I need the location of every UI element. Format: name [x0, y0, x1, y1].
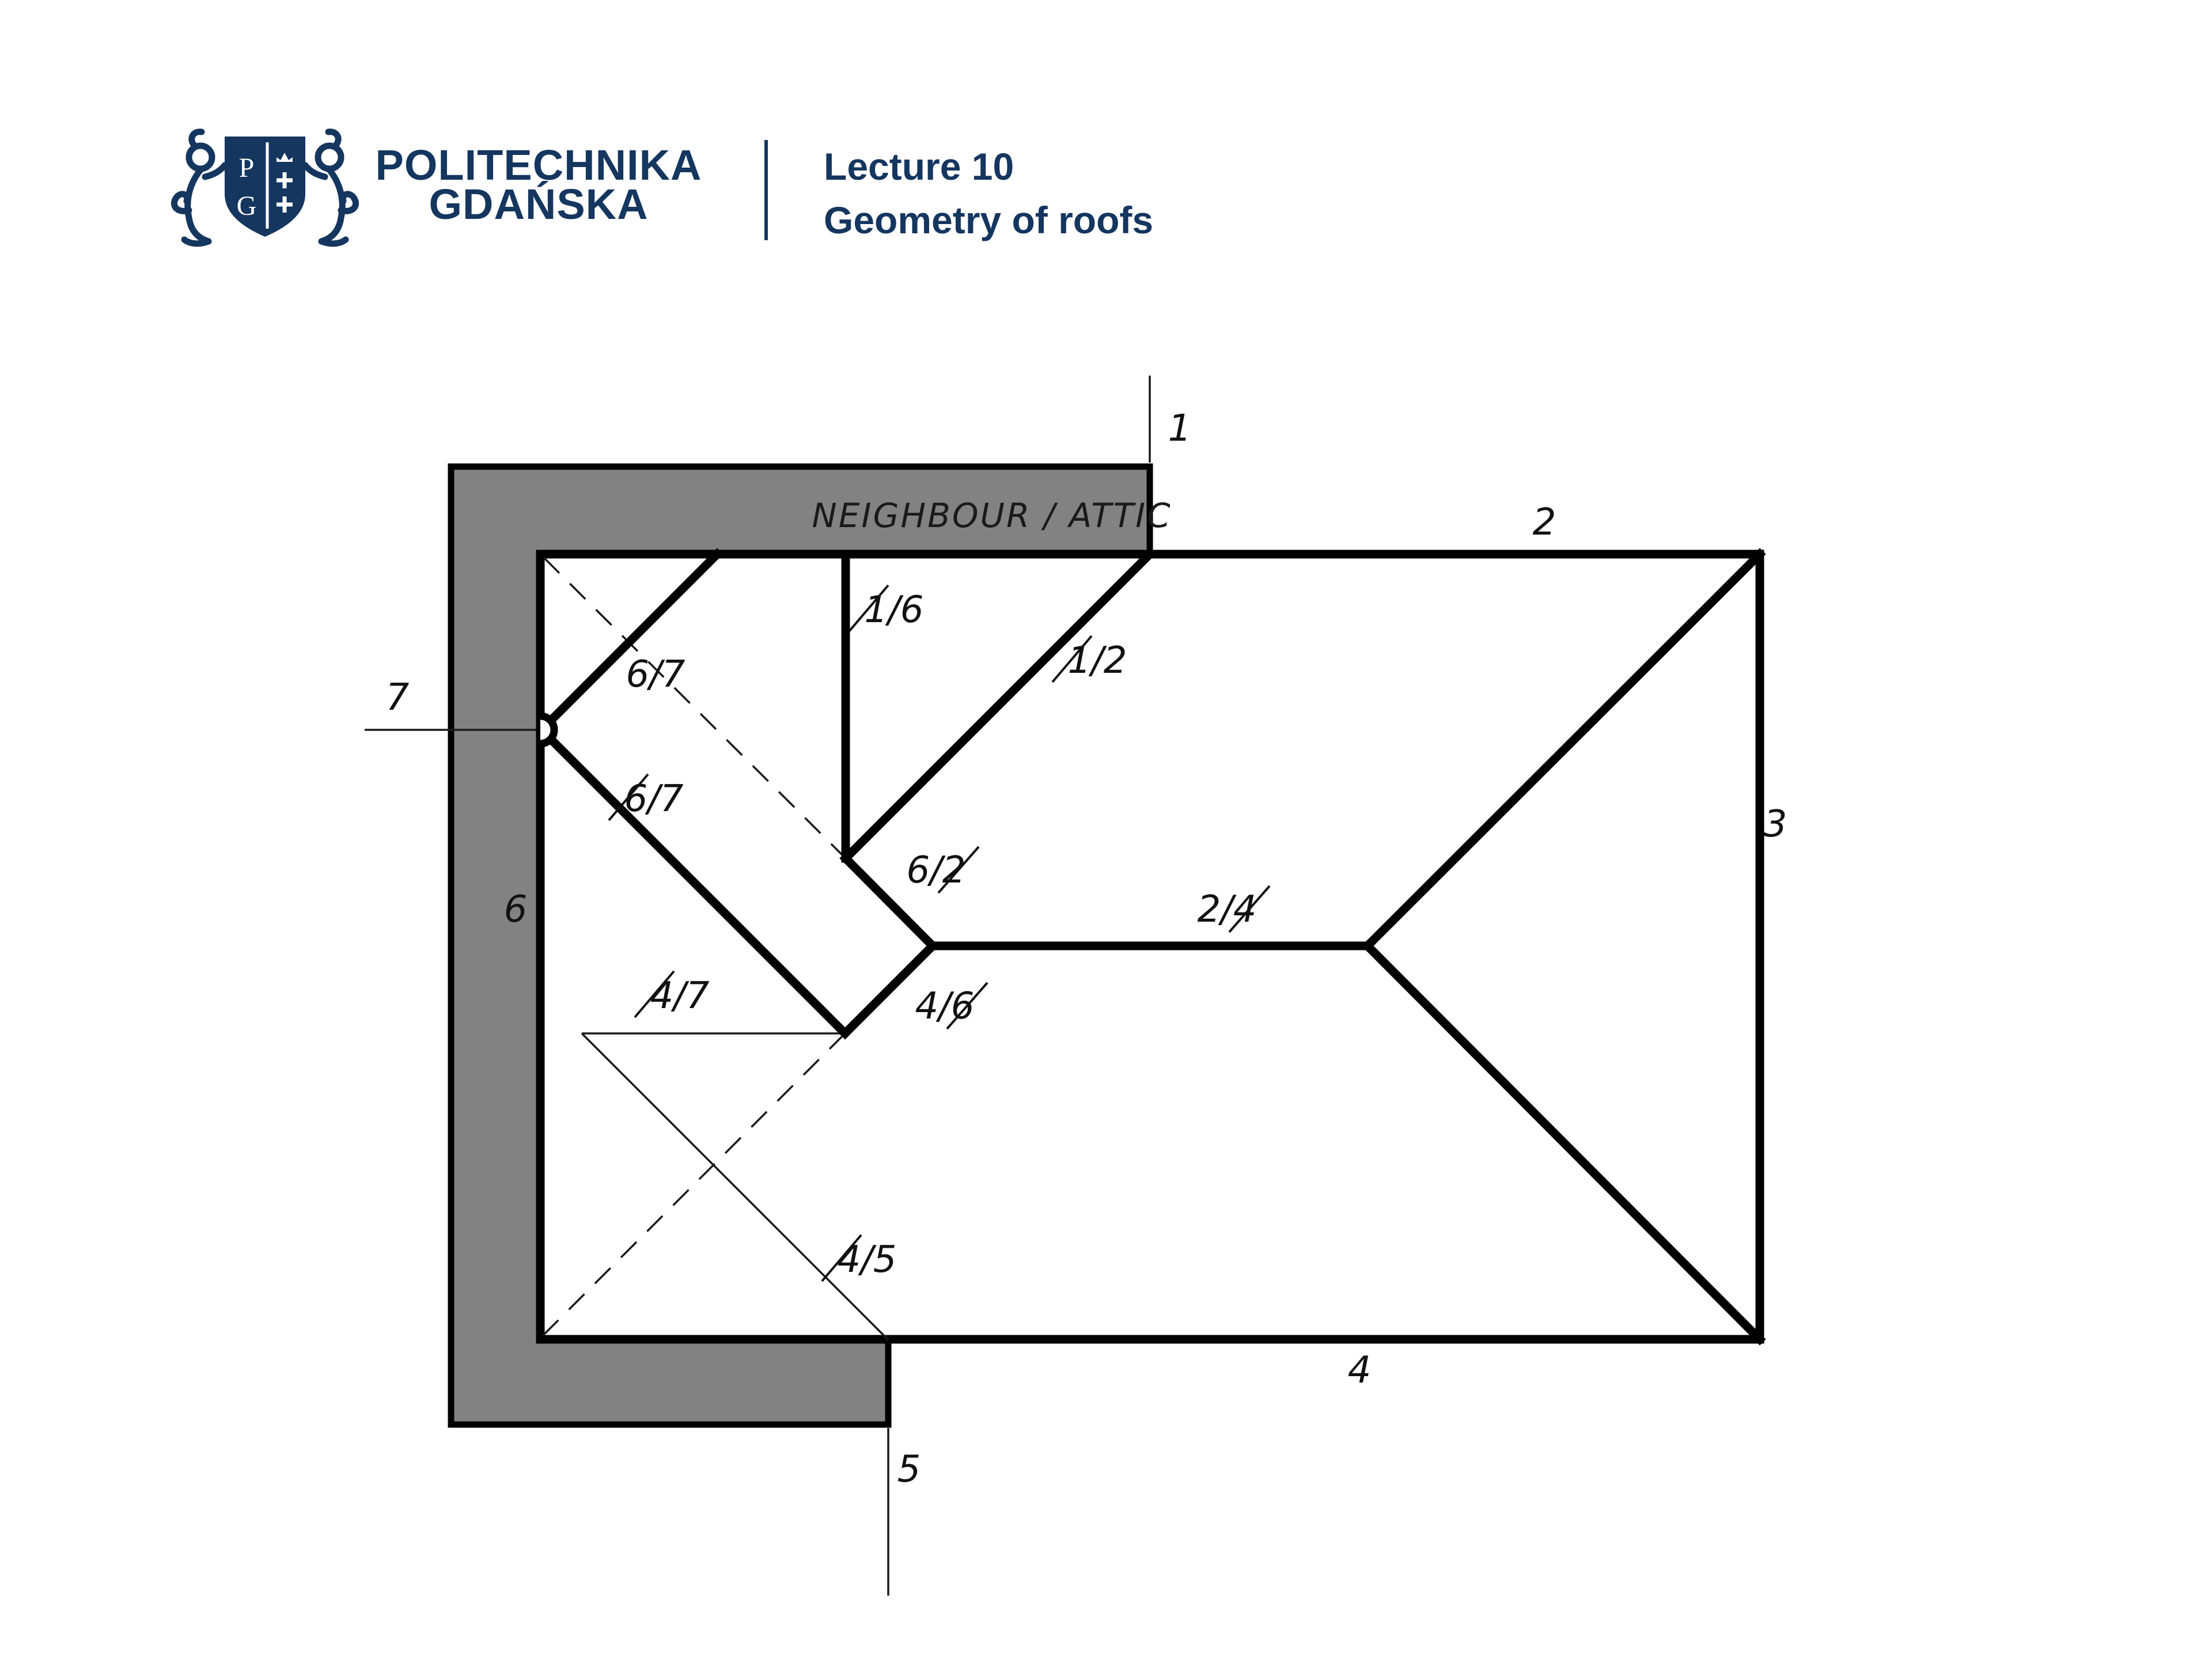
shield-shape	[225, 137, 305, 237]
lecture-number: Lecture 10	[824, 145, 1014, 188]
shield-letter-g: G	[237, 191, 257, 221]
lion-left-icon	[174, 132, 225, 244]
header: P G POLITECHNIKA GDAŃSKA Lecture 10 Geom…	[174, 132, 1153, 244]
pg-shield: P G	[225, 137, 305, 237]
edge-label-6: 6	[504, 888, 528, 931]
plane-label-4-7: 4/7	[650, 975, 710, 1017]
plane-label-1-2: 1/2	[1068, 639, 1127, 682]
point-7-arc	[540, 716, 554, 744]
plane-label-6-7-upper: 6/7	[626, 653, 685, 696]
edge-label-7: 7	[386, 676, 410, 719]
lion-right-icon	[305, 132, 356, 244]
edge-label-1: 1	[1168, 407, 1192, 450]
shield-letter-p: P	[239, 153, 255, 183]
lecture-title: Geometry of roofs	[824, 199, 1153, 241]
plane-label-6-7-lower: 6/7	[624, 778, 684, 820]
edge-label-5: 5	[897, 1448, 921, 1491]
neighbour-attic-label: NEIGHBOUR / ATTIC	[812, 496, 1172, 535]
pg-logo: P G	[174, 132, 355, 244]
edge-label-2: 2	[1533, 501, 1556, 544]
slide-canvas: P G POLITECHNIKA GDAŃSKA Lecture 10 Geom…	[0, 0, 2212, 1659]
edge-label-4: 4	[1348, 1349, 1372, 1392]
plane-label-1-6: 1/6	[865, 589, 924, 631]
plane-label-4-5: 4/5	[838, 1238, 897, 1281]
roof-plan-diagram: NEIGHBOUR / ATTIC 1 2 3 4 5 6 7 1/6 1/2 …	[365, 376, 1787, 1596]
university-name-line2: GDAŃSKA	[429, 180, 648, 228]
edge-label-3: 3	[1764, 803, 1787, 846]
